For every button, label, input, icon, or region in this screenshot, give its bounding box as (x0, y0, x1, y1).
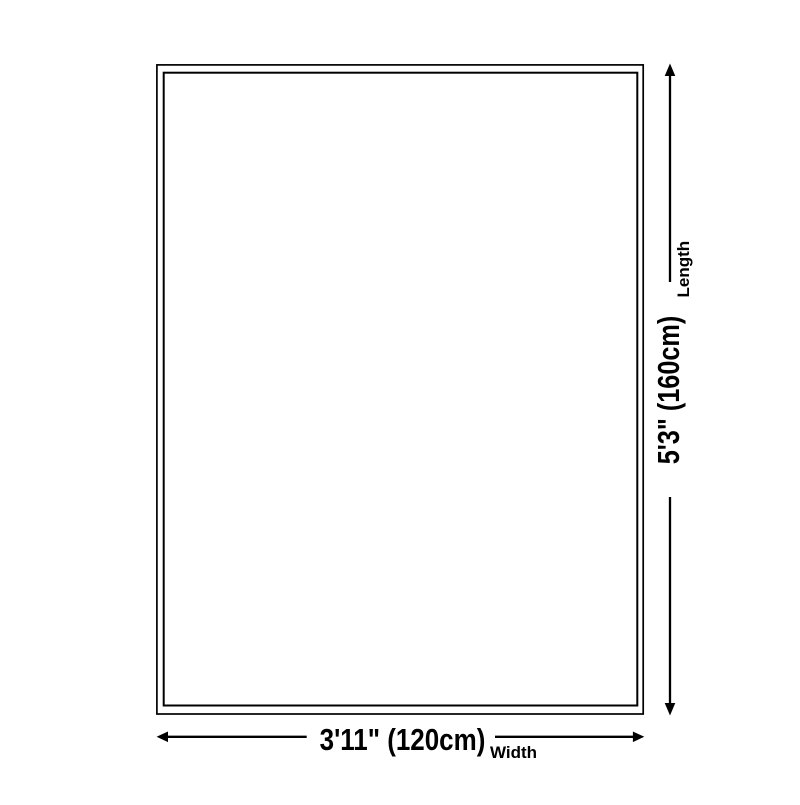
svg-text:5'3" (160cm): 5'3" (160cm) (650, 316, 685, 465)
svg-text:3'11" (120cm): 3'11" (120cm) (320, 723, 486, 758)
svg-text:Length: Length (674, 241, 693, 298)
svg-text:Width: Width (490, 743, 537, 762)
